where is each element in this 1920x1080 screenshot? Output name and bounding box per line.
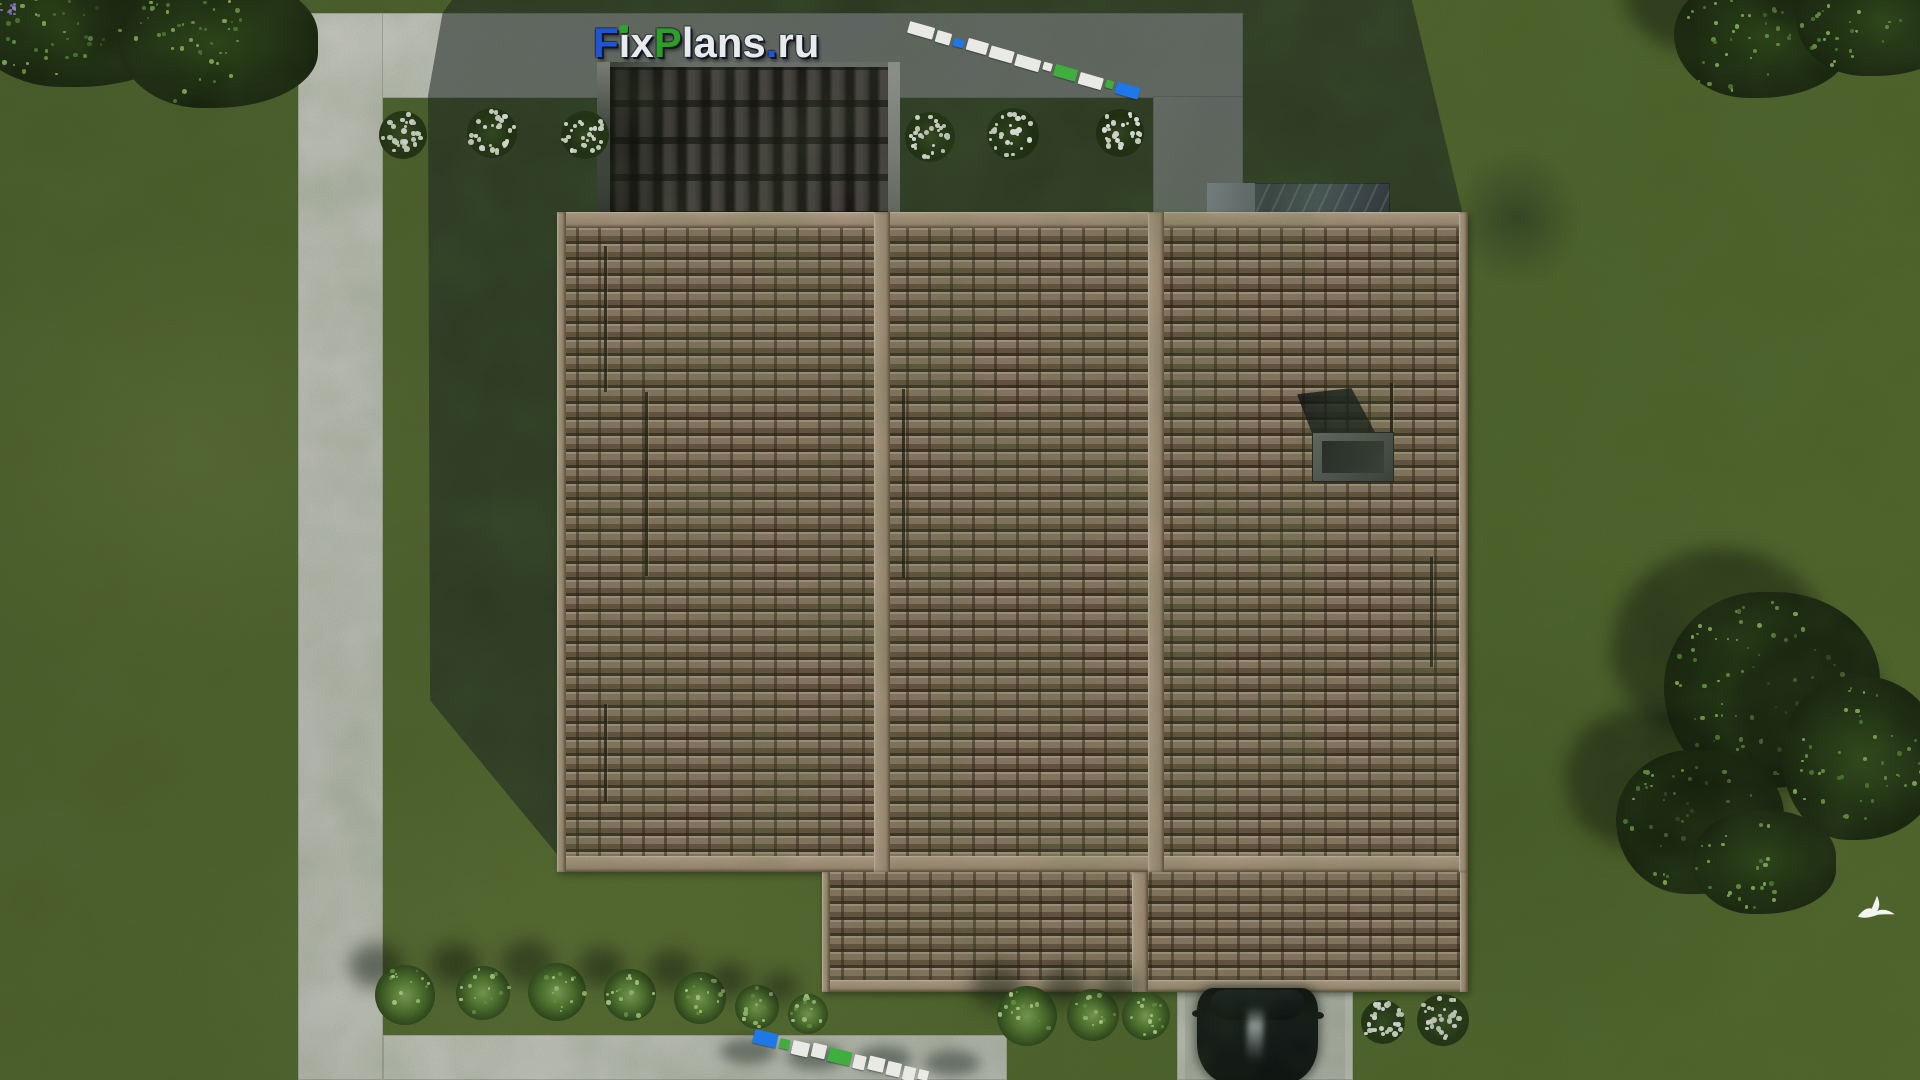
logo-letter: n <box>717 22 743 64</box>
logo-letter: ı <box>619 22 631 64</box>
watermark-segment <box>1105 79 1115 89</box>
watermark-segment <box>902 1066 917 1080</box>
logo-letter: l <box>682 22 694 64</box>
watermark-segment <box>867 1056 886 1073</box>
watermark-segment <box>852 1054 867 1070</box>
site-logo: FixPlans.ruFıxPlans.ru <box>593 22 819 64</box>
logo-letter: P <box>654 22 682 64</box>
site-plan-render: FixPlans.ruFıxPlans.ru <box>0 0 1920 1080</box>
logo-letter: x <box>630 22 653 64</box>
logo-letter: r <box>777 22 793 64</box>
watermark-segment <box>1042 62 1053 72</box>
watermark-segment <box>917 1069 929 1080</box>
logo-letter: a <box>693 22 716 64</box>
logo-letter: F <box>593 22 619 64</box>
logo-letter: u <box>794 22 820 64</box>
logo-letter: . <box>766 22 778 64</box>
bird <box>1853 893 1899 927</box>
logo-letter: s <box>742 22 765 64</box>
logo-letter-dot <box>620 25 628 33</box>
watermark-segment <box>885 1061 902 1078</box>
texture-grain-overlay <box>0 0 1920 1080</box>
watermark-segment <box>779 1038 791 1050</box>
watermark-segment <box>811 1043 828 1060</box>
watermark-segment <box>952 38 965 49</box>
